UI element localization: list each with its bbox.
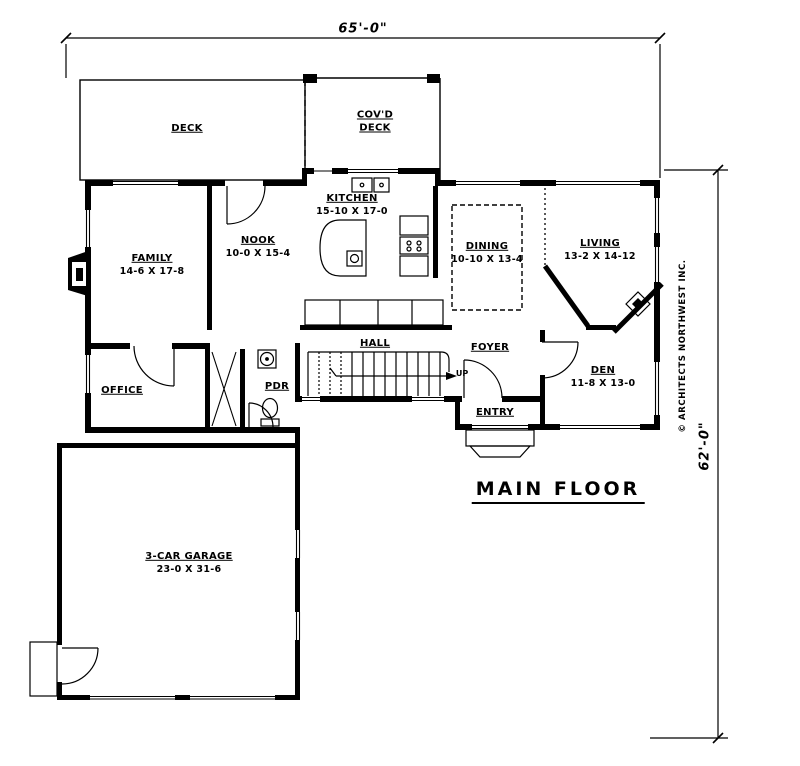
foyer-label: FOYER xyxy=(471,342,509,355)
office-name: OFFICE xyxy=(101,385,143,398)
entry-porch xyxy=(466,430,534,457)
pdr-label: PDR xyxy=(265,381,289,394)
foyer-name: FOYER xyxy=(471,342,509,355)
living-name: LIVING xyxy=(564,238,636,251)
top-dimension-label: 65'-0" xyxy=(338,22,387,37)
covd-deck-name-line1: COV'D xyxy=(357,110,393,123)
kitchen-label: KITCHEN 15-10 X 17-0 xyxy=(316,193,388,217)
dining-label: DINING 10-10 X 13-4 xyxy=(451,241,523,265)
den-name: DEN xyxy=(571,365,636,378)
dining-name: DINING xyxy=(451,241,523,254)
interior-walls xyxy=(85,186,616,430)
right-dimension-label: 62'-0" xyxy=(698,421,713,470)
den-size: 11-8 X 13-0 xyxy=(571,377,636,389)
family-fireplace-bay xyxy=(68,250,91,297)
kitchen-size: 15-10 X 17-0 xyxy=(316,205,388,217)
entry-name: ENTRY xyxy=(476,407,514,420)
family-label: FAMILY 14-6 X 17-8 xyxy=(120,253,185,277)
nook-builtin xyxy=(305,300,443,325)
living-label: LIVING 13-2 X 14-12 xyxy=(564,238,636,262)
living-size: 13-2 X 14-12 xyxy=(564,250,636,262)
living-corner-fireplace xyxy=(626,292,650,316)
closet-doors xyxy=(212,352,236,426)
garage-size: 23-0 X 31-6 xyxy=(145,563,232,575)
plan-title: MAIN FLOOR xyxy=(472,478,645,504)
hall-label: HALL xyxy=(360,338,390,351)
kitchen-name: KITCHEN xyxy=(316,193,388,206)
covd-deck-name-line2: DECK xyxy=(357,122,393,135)
nook-label: NOOK 10-0 X 15-4 xyxy=(226,235,291,259)
deck-name: DECK xyxy=(171,123,202,136)
garage-label: 3-CAR GARAGE 23-0 X 31-6 xyxy=(145,551,232,575)
staircase xyxy=(308,352,457,396)
pdr-name: PDR xyxy=(265,381,289,394)
den-label: DEN 11-8 X 13-0 xyxy=(571,365,636,389)
nook-size: 10-0 X 15-4 xyxy=(226,247,291,259)
copyright-text: © ARCHITECTS NORTHWEST INC. xyxy=(678,259,688,432)
nook-name: NOOK xyxy=(226,235,291,248)
family-name: FAMILY xyxy=(120,253,185,266)
stairs-up-label: UP xyxy=(456,369,468,379)
entry-label: ENTRY xyxy=(476,407,514,420)
deck-label: DECK xyxy=(171,123,202,136)
stairs-direction: UP xyxy=(456,369,468,378)
floor-plan-page: 65'-0" 62'-0" © ARCHITECTS NORTHWEST INC… xyxy=(0,0,800,766)
garage-side-stoop xyxy=(30,642,57,696)
covd-deck-label: COV'D DECK xyxy=(357,110,393,135)
dining-size: 10-10 X 13-4 xyxy=(451,253,523,265)
hall-name: HALL xyxy=(360,338,390,351)
garage-name: 3-CAR GARAGE xyxy=(145,551,232,564)
family-size: 14-6 X 17-8 xyxy=(120,265,185,277)
office-label: OFFICE xyxy=(101,385,143,398)
